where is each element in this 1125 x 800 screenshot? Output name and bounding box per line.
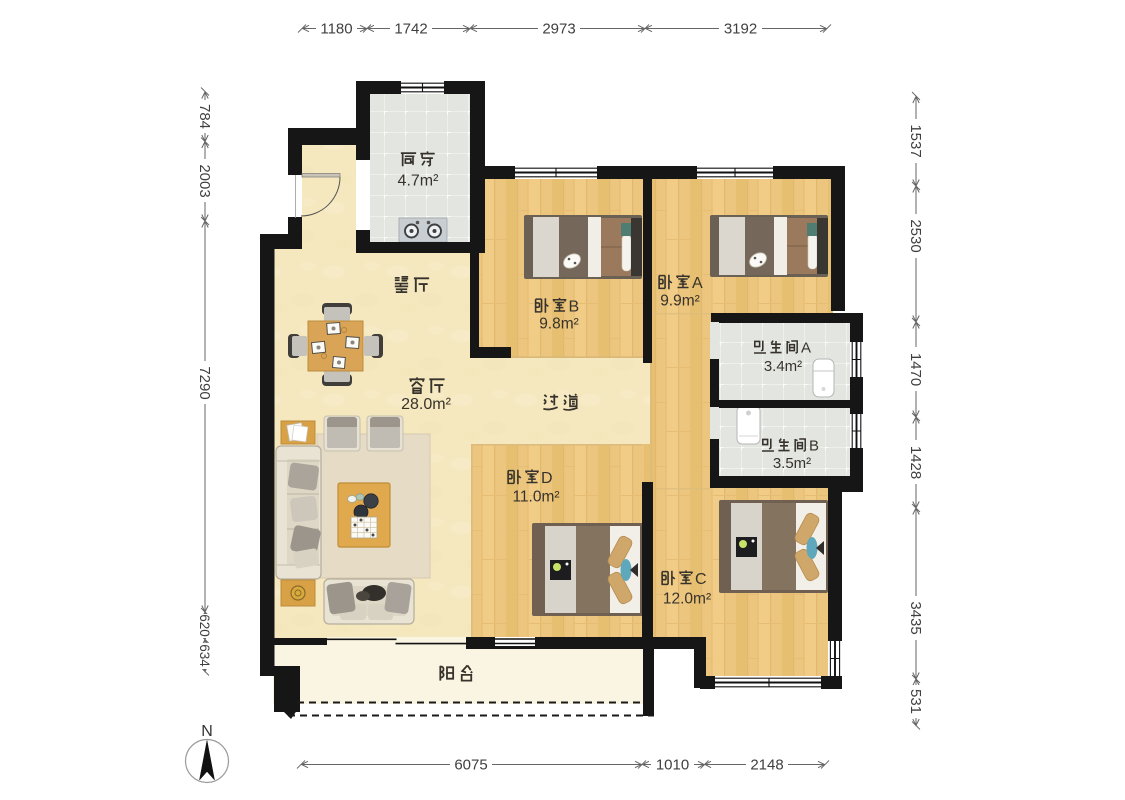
svg-text:B: B <box>569 299 580 316</box>
svg-text:531: 531 <box>907 689 924 714</box>
svg-text:1428: 1428 <box>907 446 924 479</box>
svg-text:3.4m²: 3.4m² <box>764 358 802 375</box>
svg-text:634: 634 <box>197 644 212 667</box>
svg-text:B: B <box>809 438 819 455</box>
svg-text:4.7m²: 4.7m² <box>398 173 440 190</box>
svg-text:N: N <box>201 723 213 740</box>
svg-text:3192: 3192 <box>724 21 757 38</box>
svg-text:2148: 2148 <box>750 757 783 774</box>
svg-text:9.9m²: 9.9m² <box>660 293 700 310</box>
svg-text:620: 620 <box>197 614 212 637</box>
svg-text:1180: 1180 <box>320 21 352 38</box>
svg-text:2530: 2530 <box>907 219 924 252</box>
svg-text:9.8m²: 9.8m² <box>539 316 579 333</box>
svg-text:C: C <box>695 571 707 588</box>
svg-text:2973: 2973 <box>542 21 575 38</box>
svg-text:D: D <box>541 470 553 487</box>
svg-text:3.5m²: 3.5m² <box>773 455 811 472</box>
svg-text:784: 784 <box>196 104 213 129</box>
svg-text:A: A <box>801 340 811 357</box>
svg-text:1742: 1742 <box>394 21 427 38</box>
svg-text:11.0m²: 11.0m² <box>512 489 559 506</box>
svg-text:1537: 1537 <box>907 124 924 157</box>
svg-text:28.0m²: 28.0m² <box>401 396 451 413</box>
svg-text:1010: 1010 <box>656 757 689 774</box>
svg-text:12.0m²: 12.0m² <box>663 591 711 608</box>
svg-text:2003: 2003 <box>196 164 213 197</box>
svg-text:A: A <box>692 275 703 292</box>
svg-text:7290: 7290 <box>196 366 213 399</box>
svg-text:3435: 3435 <box>907 601 924 634</box>
svg-text:1470: 1470 <box>907 353 924 386</box>
svg-text:6075: 6075 <box>454 757 487 774</box>
